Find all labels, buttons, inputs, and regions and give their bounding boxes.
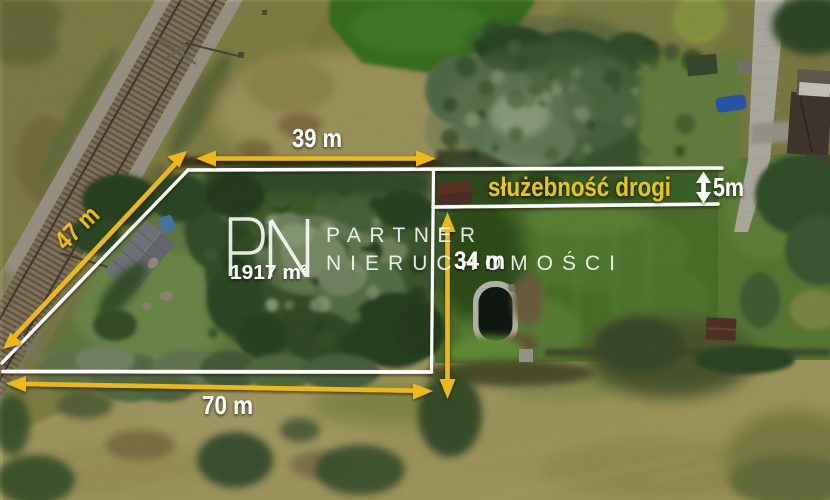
svg-text:NIERUCHOMOŚCI: NIERUCHOMOŚCI xyxy=(326,251,615,275)
svg-text:39 m: 39 m xyxy=(292,123,342,153)
svg-text:służebność drogi: służebność drogi xyxy=(488,172,671,202)
svg-text:5m: 5m xyxy=(713,172,744,202)
svg-text:70 m: 70 m xyxy=(202,390,253,420)
